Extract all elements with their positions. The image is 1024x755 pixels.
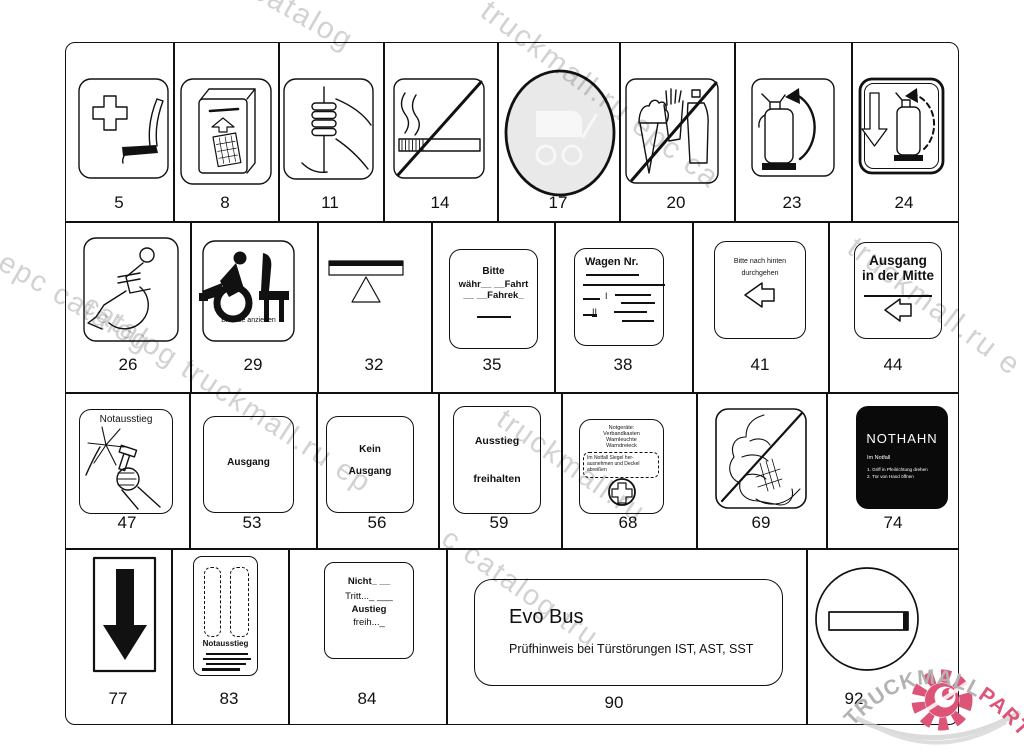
col-divider bbox=[173, 43, 175, 221]
sign-rule bbox=[583, 284, 665, 286]
sign-line: Ausstieg bbox=[454, 435, 540, 447]
item-number-44[interactable]: 44 bbox=[863, 355, 923, 375]
col-divider bbox=[554, 221, 556, 392]
item-number-11[interactable]: 11 bbox=[300, 193, 360, 213]
ticket-validator-icon bbox=[181, 79, 271, 184]
sign-rule bbox=[203, 658, 251, 660]
sign-subtitle: Prüfhinweis bei Türstörungen IST, AST, S… bbox=[509, 642, 753, 656]
item-number-17[interactable]: 17 bbox=[528, 193, 588, 213]
item-number-74[interactable]: 74 bbox=[863, 513, 923, 533]
sign-line: 2. Tür von Hand öffnen bbox=[867, 474, 947, 479]
item-number-32[interactable]: 32 bbox=[344, 355, 404, 375]
sign-nothahn: NOTHAHN Im Notfall 1. Griff in Pfeilrich… bbox=[856, 406, 948, 509]
item-number-35[interactable]: 35 bbox=[462, 355, 522, 375]
sign-rule bbox=[477, 316, 511, 318]
sign-line: Tritt..._ ___ bbox=[325, 591, 413, 602]
col-divider bbox=[189, 392, 191, 548]
seesaw-icon bbox=[329, 261, 403, 302]
fire-extinguisher-location-icon bbox=[860, 79, 943, 173]
col-divider bbox=[734, 43, 736, 221]
sign-label: Bremse anziehen bbox=[204, 317, 293, 324]
sign-title: NOTHAHN bbox=[857, 431, 947, 446]
sign-exit-in-middle: Ausgang in der Mitte bbox=[854, 242, 942, 339]
sign-label: Notausstieg bbox=[194, 639, 257, 648]
sign-emergency-exit: Notausstieg bbox=[79, 409, 173, 514]
item-number-90[interactable]: 90 bbox=[584, 693, 644, 713]
sign-rule bbox=[206, 653, 248, 655]
sign-exit: Ausgang bbox=[203, 416, 294, 513]
wheelchair-brake-icon bbox=[199, 241, 294, 341]
item-number-84[interactable]: 84 bbox=[337, 689, 397, 709]
col-divider bbox=[383, 43, 385, 221]
sign-rule bbox=[622, 320, 654, 322]
col-divider bbox=[190, 221, 192, 392]
item-number-29[interactable]: 29 bbox=[223, 355, 283, 375]
col-divider bbox=[826, 392, 828, 548]
no-operate-icon bbox=[716, 409, 806, 508]
item-number-77[interactable]: 77 bbox=[88, 689, 148, 709]
sign-keep-step-clear: Nicht_ __ Tritt..._ ___ Austieg freih...… bbox=[324, 562, 414, 659]
wheelchair-icon bbox=[84, 238, 178, 341]
sign-line: Ausgang bbox=[855, 253, 941, 268]
item-number-26[interactable]: 26 bbox=[98, 355, 158, 375]
sign-marker: I bbox=[605, 291, 608, 302]
item-number-38[interactable]: 38 bbox=[593, 355, 653, 375]
item-number-8[interactable]: 8 bbox=[195, 193, 255, 213]
door-window-outline bbox=[204, 567, 221, 637]
down-arrow-icon bbox=[94, 558, 155, 671]
sign-evobus-note: Evo Bus Prüfhinweis bei Türstörungen IST… bbox=[474, 579, 783, 686]
sign-marker: II bbox=[592, 307, 597, 318]
sign-move-to-rear: Bitte nach hinten durchgehen bbox=[714, 241, 806, 339]
sign-title: Notausstieg bbox=[80, 414, 172, 425]
no-smoking-icon bbox=[394, 79, 484, 178]
item-number-23[interactable]: 23 bbox=[762, 193, 822, 213]
col-divider bbox=[696, 392, 698, 548]
sign-rule bbox=[864, 295, 932, 297]
fire-extinguisher-icon bbox=[752, 79, 834, 176]
sign-during-ride: Bitte währ__ __Fahrt __ __Fahrek_ bbox=[449, 249, 538, 349]
catalog-page: Bitte währ__ __Fahrt __ __Fahrek_ Wagen … bbox=[0, 0, 1024, 750]
sign-rule bbox=[583, 298, 600, 300]
row-divider bbox=[66, 392, 958, 394]
sign-line: Austieg bbox=[325, 604, 413, 615]
sign-line: __ __Fahrek_ bbox=[450, 290, 537, 301]
sign-label: Ausgang bbox=[204, 457, 293, 468]
item-number-68[interactable]: 68 bbox=[598, 513, 658, 533]
sign-subtitle: Im Notfall bbox=[867, 455, 947, 461]
item-number-59[interactable]: 59 bbox=[469, 513, 529, 533]
row-divider bbox=[66, 548, 958, 550]
item-number-69[interactable]: 69 bbox=[731, 513, 791, 533]
sign-line: Bitte bbox=[450, 266, 537, 277]
col-divider bbox=[316, 392, 318, 548]
sign-line: 1. Griff in Pfeilrichtung drehen bbox=[867, 467, 947, 472]
item-number-20[interactable]: 20 bbox=[646, 193, 706, 213]
col-divider bbox=[619, 43, 621, 221]
sign-title: Wagen Nr. bbox=[585, 256, 638, 270]
col-divider bbox=[278, 43, 280, 221]
col-divider bbox=[692, 221, 694, 392]
col-divider bbox=[851, 43, 853, 221]
parts-illustration-table: Bitte währ__ __Fahrt __ __Fahrek_ Wagen … bbox=[65, 42, 959, 725]
item-number-83[interactable]: 83 bbox=[199, 689, 259, 709]
col-divider bbox=[828, 221, 830, 392]
col-divider bbox=[317, 221, 319, 392]
sign-line: freihalten bbox=[454, 473, 540, 485]
sign-rule bbox=[206, 663, 246, 665]
sign-line: Nicht_ __ bbox=[325, 576, 413, 587]
row-divider bbox=[66, 221, 958, 223]
col-divider bbox=[446, 548, 448, 724]
sign-emergency-equipment: Notgeräte: Verbandkasten Warnleuchte War… bbox=[579, 419, 664, 514]
sign-line: Ausgang bbox=[327, 466, 413, 477]
sign-no-exit: Kein Ausgang bbox=[326, 416, 414, 513]
sign-title: Evo Bus bbox=[509, 606, 583, 629]
sign-rule bbox=[202, 668, 240, 671]
col-divider bbox=[288, 548, 290, 724]
sign-wagen-nr: Wagen Nr. I II bbox=[574, 248, 664, 346]
sign-keep-exit-clear: Ausstieg freihalten bbox=[453, 406, 541, 514]
col-divider bbox=[561, 392, 563, 548]
no-entry-icon bbox=[816, 568, 918, 670]
handhold-icon bbox=[284, 79, 373, 179]
first-aid-seat-icon bbox=[79, 79, 168, 178]
sign-emergency-exit-door: Notausstieg bbox=[193, 556, 258, 676]
sign-line: Bitte nach hinten bbox=[715, 258, 805, 265]
col-divider bbox=[438, 392, 440, 548]
logo-swoosh bbox=[878, 722, 1006, 743]
col-divider bbox=[497, 43, 499, 221]
sign-line: durchgehen bbox=[715, 270, 805, 277]
col-divider bbox=[806, 548, 808, 724]
col-divider bbox=[171, 548, 173, 724]
sign-line: Warndreieck bbox=[580, 443, 663, 449]
sign-line: in der Mitte bbox=[855, 268, 941, 283]
door-window-outline bbox=[230, 567, 249, 637]
item-number-24[interactable]: 24 bbox=[874, 193, 934, 213]
item-number-47[interactable]: 47 bbox=[97, 513, 157, 533]
sign-rule bbox=[615, 294, 651, 296]
no-eating-icon bbox=[626, 79, 718, 183]
item-number-5[interactable]: 5 bbox=[89, 193, 149, 213]
col-divider bbox=[431, 221, 433, 392]
item-number-56[interactable]: 56 bbox=[347, 513, 407, 533]
sign-rule bbox=[621, 302, 655, 304]
sign-rule bbox=[586, 274, 639, 276]
sign-line: Kein bbox=[327, 444, 413, 455]
pram-area-icon bbox=[506, 71, 614, 195]
item-number-14[interactable]: 14 bbox=[410, 193, 470, 213]
sign-note-box: Im Notfall Siegel her- ausnehmen und Dec… bbox=[583, 452, 659, 478]
sign-line: freih..._ bbox=[325, 617, 413, 628]
item-number-41[interactable]: 41 bbox=[730, 355, 790, 375]
item-number-92[interactable]: 92 bbox=[824, 689, 884, 709]
sign-note-line: abreißen bbox=[587, 467, 655, 473]
sign-line: währ__ __Fahrt bbox=[450, 279, 537, 290]
sign-rule bbox=[614, 311, 647, 313]
item-number-53[interactable]: 53 bbox=[222, 513, 282, 533]
